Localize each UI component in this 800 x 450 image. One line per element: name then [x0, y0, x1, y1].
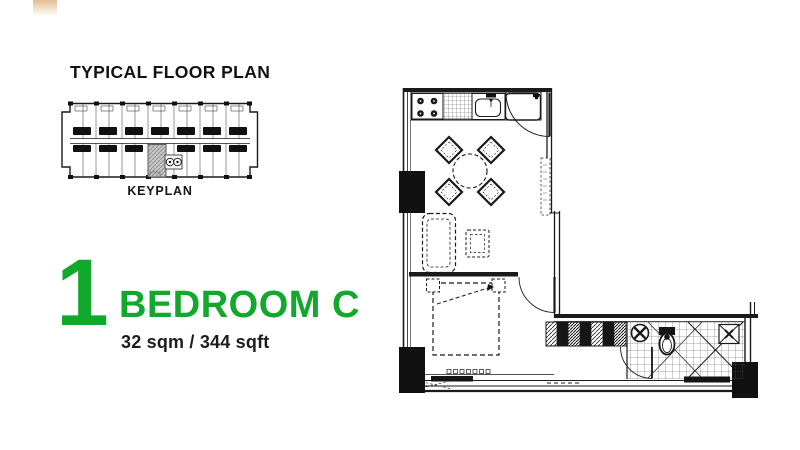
- refrigerator-icon: [506, 94, 541, 121]
- counter-hatch: [443, 94, 472, 120]
- kitchen-counter: [411, 92, 541, 120]
- bedroom-door: [519, 277, 555, 313]
- unit-floorplan-drawing: [395, 80, 770, 410]
- window-slider-bar: [431, 376, 473, 382]
- side-table: [466, 230, 489, 257]
- wardrobe: [546, 322, 627, 346]
- sofa: [423, 214, 456, 273]
- stove-icon: [412, 94, 443, 120]
- shower-drain-box: [719, 325, 739, 344]
- bed: [427, 279, 506, 355]
- utility-shaft: [541, 158, 550, 215]
- unit-text-block: BEDROOM C 32 sqm / 344 sqft: [119, 286, 360, 353]
- sink-icon: [472, 93, 505, 120]
- dining-table: [453, 154, 487, 188]
- lavatory-icon: [632, 325, 649, 342]
- dining-set: [436, 137, 504, 205]
- shower-curb: [684, 377, 730, 383]
- bathroom: [621, 322, 745, 383]
- keyplan-drawing: [55, 95, 265, 195]
- unit-type-label: BEDROOM C: [119, 286, 360, 324]
- toilet-icon: [659, 327, 675, 355]
- keyplan-caption: KEYPLAN: [55, 184, 265, 198]
- unit-count-digit: 1: [56, 252, 109, 336]
- section-title: TYPICAL FLOOR PLAN: [70, 62, 270, 83]
- corner-accent-square: [33, 0, 57, 15]
- unit-area-label: 32 sqm / 344 sqft: [121, 332, 360, 353]
